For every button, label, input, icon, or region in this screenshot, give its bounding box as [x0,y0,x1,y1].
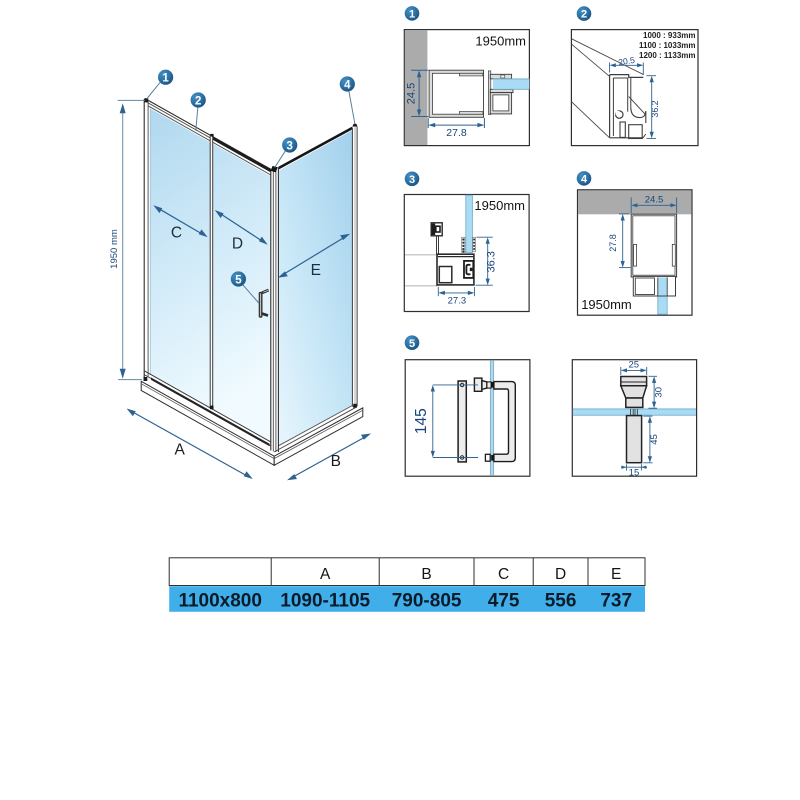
svg-text:737: 737 [600,591,632,612]
svg-text:27.3: 27.3 [448,296,467,307]
svg-text:C: C [498,566,509,583]
svg-text:556: 556 [545,591,577,612]
svg-text:1950mm: 1950mm [474,198,525,213]
svg-text:4: 4 [344,79,351,91]
svg-text:3: 3 [286,140,292,152]
svg-text:475: 475 [488,591,520,612]
svg-text:1950 mm: 1950 mm [109,229,120,269]
svg-text:1100 : 1033mm: 1100 : 1033mm [639,41,696,50]
svg-text:D: D [555,566,566,583]
svg-text:A: A [320,566,331,583]
svg-text:145: 145 [413,408,430,434]
svg-text:E: E [611,566,621,583]
svg-text:A: A [175,442,186,459]
svg-text:1000 : 933mm: 1000 : 933mm [643,31,695,40]
svg-text:36.2: 36.2 [650,100,660,117]
svg-text:30: 30 [653,387,664,398]
svg-text:2: 2 [195,95,201,107]
svg-text:15: 15 [629,467,640,478]
svg-text:B: B [421,566,431,583]
svg-text:B: B [331,453,341,470]
svg-text:2: 2 [581,9,587,21]
svg-text:1: 1 [409,9,415,21]
svg-text:5: 5 [235,274,242,286]
svg-text:24.5: 24.5 [406,83,418,104]
svg-text:790-805: 790-805 [392,591,462,612]
svg-text:45: 45 [649,434,660,445]
svg-text:1950mm: 1950mm [475,34,526,49]
svg-text:D: D [232,236,243,253]
svg-text:27.8: 27.8 [608,234,618,252]
svg-text:C: C [171,225,182,242]
svg-text:1950mm: 1950mm [581,297,632,312]
svg-text:1100x800: 1100x800 [178,591,262,612]
svg-text:E: E [311,262,321,279]
svg-text:1: 1 [162,73,169,85]
svg-text:3: 3 [409,174,415,186]
svg-text:25: 25 [629,360,640,371]
svg-text:1200 : 1133mm: 1200 : 1133mm [639,51,696,60]
svg-text:1090-1105: 1090-1105 [280,591,370,612]
svg-text:5: 5 [409,338,415,350]
svg-text:4: 4 [581,174,588,186]
svg-text:36.3: 36.3 [486,251,498,272]
svg-text:27.8: 27.8 [446,127,467,139]
svg-text:24.5: 24.5 [645,194,664,205]
